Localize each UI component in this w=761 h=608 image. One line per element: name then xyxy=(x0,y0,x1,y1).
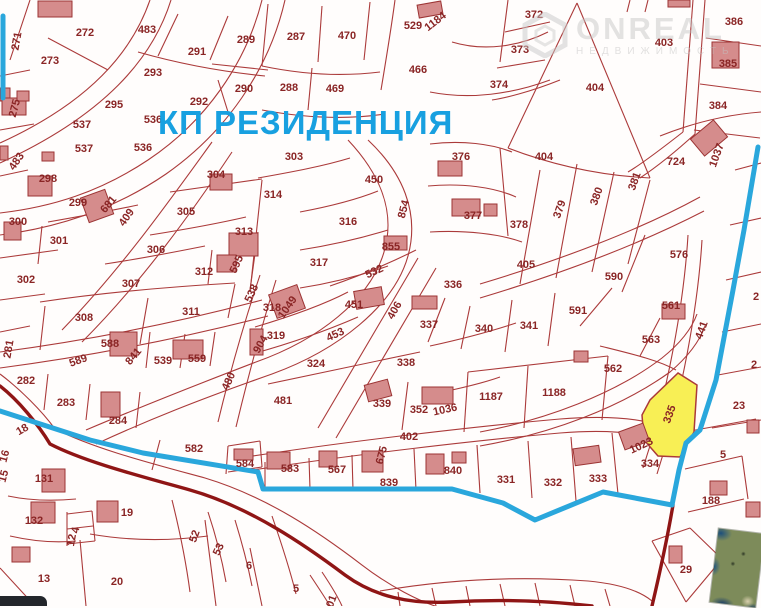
plot-label-338: 338 xyxy=(397,357,415,369)
plot-label-469: 469 xyxy=(326,83,344,95)
plot-label-5: 5 xyxy=(720,449,726,461)
parcel-boundary xyxy=(628,180,650,264)
plot-label-481: 481 xyxy=(274,395,292,407)
plot-label-450: 450 xyxy=(365,174,383,186)
parcel-boundary xyxy=(226,446,228,474)
plot-label-20: 20 xyxy=(111,576,123,588)
main-road-line xyxy=(0,386,592,606)
plot-label-855: 855 xyxy=(382,241,400,253)
plot-label-840: 840 xyxy=(444,465,462,477)
parcel-boundary xyxy=(548,293,555,346)
plot-label-332: 332 xyxy=(544,477,562,489)
parcel-boundary xyxy=(364,2,370,60)
parcel-boundary xyxy=(452,32,548,47)
plot-label-15: 15 xyxy=(0,469,11,484)
plot-label-314: 314 xyxy=(264,189,283,201)
plot-label-29: 29 xyxy=(680,564,692,576)
plot-label-5: 5 xyxy=(293,583,299,595)
plot-label-339: 339 xyxy=(373,398,391,410)
plot-label-304: 304 xyxy=(207,169,226,181)
building xyxy=(746,502,760,517)
building xyxy=(0,146,8,160)
plot-label-291: 291 xyxy=(188,46,206,58)
parcel-boundary xyxy=(742,456,748,499)
building xyxy=(438,161,462,176)
plot-label-16: 16 xyxy=(0,449,12,464)
parcel-boundary xyxy=(136,392,140,428)
building xyxy=(573,445,601,465)
plot-label-404: 404 xyxy=(535,151,554,163)
parcel-boundary xyxy=(150,217,246,235)
parcel-boundary xyxy=(253,417,668,456)
plot-label-576: 576 xyxy=(670,249,688,261)
plot-label-295: 295 xyxy=(105,99,123,111)
plot-label-537: 537 xyxy=(73,119,91,131)
parcel-boundary xyxy=(44,374,48,410)
parcel-boundary xyxy=(508,3,577,148)
plot-label-52: 52 xyxy=(187,529,202,545)
plot-label-386: 386 xyxy=(725,16,743,28)
plot-label-451: 451 xyxy=(345,299,363,311)
plot-label-584: 584 xyxy=(236,458,255,470)
plot-label-308: 308 xyxy=(75,312,93,324)
plot-label-409: 409 xyxy=(117,207,137,229)
plot-label-287: 287 xyxy=(287,31,305,43)
plot-label-352: 352 xyxy=(410,404,428,416)
plot-label-582: 582 xyxy=(185,443,203,455)
parcel-boundary xyxy=(158,14,178,56)
plot-label-483: 483 xyxy=(138,24,156,36)
plot-label-01: 01 xyxy=(324,594,339,606)
plot-label-290: 290 xyxy=(235,83,253,95)
plot-label-380: 380 xyxy=(588,186,606,207)
parcel-boundary xyxy=(452,377,500,390)
plot-label-536: 536 xyxy=(134,142,152,154)
parcel-boundary xyxy=(309,458,310,489)
plot-label-303: 303 xyxy=(285,151,303,163)
parcel-boundary xyxy=(500,0,508,62)
plot-label-404: 404 xyxy=(586,82,605,94)
plot-label-453: 453 xyxy=(325,326,347,345)
plot-label-724: 724 xyxy=(667,156,686,168)
plot-label-273: 273 xyxy=(41,55,59,67)
plot-label-376: 376 xyxy=(452,151,470,163)
building xyxy=(710,481,727,495)
building xyxy=(668,0,690,7)
parcel-boundary xyxy=(352,455,353,490)
plot-label-590: 590 xyxy=(605,271,623,283)
parcel-boundary xyxy=(228,284,235,318)
plot-label-381: 381 xyxy=(626,171,644,192)
building xyxy=(12,547,30,562)
parcel-boundary xyxy=(40,306,45,350)
parcel-boundary xyxy=(380,579,652,601)
building xyxy=(669,546,682,563)
plot-label-385: 385 xyxy=(719,58,737,70)
parcel-boundary xyxy=(80,540,86,606)
plot-label-288: 288 xyxy=(280,82,298,94)
plot-label-132: 132 xyxy=(25,515,43,527)
plot-label-306: 306 xyxy=(147,244,165,256)
plot-label-188: 188 xyxy=(702,495,720,507)
plot-label-2: 2 xyxy=(753,291,759,303)
building xyxy=(101,392,120,417)
parcel-boundary xyxy=(505,22,550,32)
plot-label-1187: 1187 xyxy=(479,391,503,403)
plot-label-311: 311 xyxy=(182,306,200,318)
parcel-boundary xyxy=(428,185,516,197)
map-title: КП РЕЗИДЕНЦИЯ xyxy=(158,104,498,142)
parcel-boundary xyxy=(228,441,260,446)
plot-label-282: 282 xyxy=(17,375,35,387)
plot-label-377: 377 xyxy=(464,210,482,222)
plot-label-562: 562 xyxy=(604,363,622,375)
plot-label-307: 307 xyxy=(122,278,140,290)
plot-label-340: 340 xyxy=(475,323,493,335)
plot-label-13: 13 xyxy=(38,573,50,585)
plot-label-675: 675 xyxy=(374,445,390,466)
parcel-boundary xyxy=(210,332,215,366)
plot-label-336: 336 xyxy=(444,279,462,291)
building xyxy=(42,152,54,161)
plot-label-317: 317 xyxy=(310,257,328,269)
parcel-boundary xyxy=(500,584,505,606)
bottom-left-ui-fragment xyxy=(0,596,47,606)
plot-label-372: 372 xyxy=(525,9,543,21)
parcel-boundary xyxy=(726,272,761,280)
plot-label-470: 470 xyxy=(338,30,356,42)
plot-label-313: 313 xyxy=(235,226,253,238)
plot-label-341: 341 xyxy=(520,320,538,332)
plot-label-583: 583 xyxy=(281,463,299,475)
plot-label-272: 272 xyxy=(76,27,94,39)
plot-label-374: 374 xyxy=(490,79,509,91)
plot-label-384: 384 xyxy=(709,100,728,112)
parcel-boundary xyxy=(695,0,705,134)
parcel-boundary xyxy=(700,84,761,92)
building xyxy=(574,351,588,362)
plot-label-301: 301 xyxy=(50,235,68,247)
parcel-boundary xyxy=(556,164,577,278)
parcel-boundary xyxy=(466,586,470,606)
plot-label-378: 378 xyxy=(510,219,528,231)
parcel-boundary xyxy=(258,158,350,178)
plot-label-271: 271 xyxy=(9,31,24,51)
building xyxy=(422,387,453,404)
parcel-boundary xyxy=(430,323,516,346)
plot-label-563: 563 xyxy=(642,334,660,346)
plot-label-302: 302 xyxy=(17,274,35,286)
plot-label-334: 334 xyxy=(641,458,660,470)
plot-label-324: 324 xyxy=(307,358,326,370)
parcel-boundary xyxy=(477,445,480,493)
plot-label-298: 298 xyxy=(39,173,57,185)
plot-label-591: 591 xyxy=(569,305,587,317)
building xyxy=(452,452,466,463)
plot-label-589: 589 xyxy=(68,352,89,370)
plot-label-466: 466 xyxy=(409,64,427,76)
parcel-boundary xyxy=(497,60,545,68)
plot-label-283: 283 xyxy=(57,397,75,409)
plot-label-53: 53 xyxy=(211,541,227,557)
parcel-boundary xyxy=(260,441,262,467)
plot-label-567: 567 xyxy=(328,464,346,476)
parcel-boundary xyxy=(300,191,378,212)
satellite-layer-thumbnail[interactable] xyxy=(710,528,761,607)
parcel-boundary xyxy=(0,250,58,258)
plot-label-529: 529 xyxy=(404,20,422,32)
plot-label-6: 6 xyxy=(246,560,252,572)
plot-label-131: 131 xyxy=(35,473,53,485)
parcel-boundary xyxy=(480,197,700,284)
parcel-boundary xyxy=(250,548,262,606)
parcel-boundary xyxy=(381,0,395,90)
parcel-boundary xyxy=(318,6,322,62)
parcel-boundary xyxy=(86,384,90,420)
parcel-boundary xyxy=(402,382,408,430)
building xyxy=(412,296,437,309)
building xyxy=(484,204,497,216)
plot-label-403: 403 xyxy=(655,37,673,49)
plot-label-537: 537 xyxy=(75,143,93,155)
building xyxy=(426,454,444,474)
parcel-boundary xyxy=(652,528,690,541)
parcel-boundary xyxy=(8,496,76,500)
plot-label-18: 18 xyxy=(14,422,31,439)
plot-label-281: 281 xyxy=(1,339,16,359)
plot-label-379: 379 xyxy=(551,199,569,220)
parcel-boundary xyxy=(685,456,742,469)
parcel-boundary xyxy=(0,294,45,300)
cadastral-map-layer[interactable]: 2712722734832912892932902922752955375365… xyxy=(0,0,761,606)
plot-label-4: 4 xyxy=(70,525,83,534)
plot-label-337: 337 xyxy=(420,319,438,331)
parcel-boundary xyxy=(210,16,228,60)
building xyxy=(17,91,29,101)
parcel-boundary xyxy=(627,0,630,12)
parcel-boundary xyxy=(0,326,30,332)
plot-label-441: 441 xyxy=(693,320,711,341)
parcel-boundary xyxy=(146,332,150,368)
plot-label-483: 483 xyxy=(7,151,27,173)
plot-label-1188: 1188 xyxy=(542,387,566,399)
plot-label-293: 293 xyxy=(144,67,162,79)
parcel-boundary xyxy=(612,433,618,494)
parcel-boundary xyxy=(464,372,468,432)
plot-label-331: 331 xyxy=(497,474,515,486)
plot-label-561: 561 xyxy=(662,300,680,312)
parcel-boundary xyxy=(67,511,92,514)
plot-label-300: 300 xyxy=(9,216,27,228)
parcel-boundary xyxy=(528,441,532,498)
parcel-boundary xyxy=(262,66,380,74)
parcel-boundary xyxy=(605,589,610,606)
parcel-boundary xyxy=(461,306,470,349)
plot-label-12: 12 xyxy=(65,533,79,547)
parcel-boundary xyxy=(508,148,650,178)
parcel-boundary xyxy=(300,230,388,250)
plot-label-559: 559 xyxy=(188,353,206,365)
plot-label-588: 588 xyxy=(101,338,119,350)
plot-label-402: 402 xyxy=(400,431,418,443)
plot-label-284: 284 xyxy=(109,415,128,427)
plot-label-23: 23 xyxy=(733,400,745,412)
parcel-boundary xyxy=(683,0,693,132)
parcel-boundary xyxy=(571,437,576,501)
parcel-boundary xyxy=(62,142,212,330)
parcel-boundary xyxy=(414,449,416,490)
plot-label-539: 539 xyxy=(154,355,172,367)
parcel-boundary xyxy=(172,500,190,592)
plot-label-480: 480 xyxy=(220,371,239,393)
plot-label-305: 305 xyxy=(177,206,195,218)
building xyxy=(38,1,72,17)
plot-label-854: 854 xyxy=(396,198,413,220)
plot-label-299: 299 xyxy=(69,197,87,209)
plot-label-373: 373 xyxy=(511,44,529,56)
parcel-boundary xyxy=(524,366,528,428)
parcel-boundary xyxy=(140,298,148,344)
plot-label-405: 405 xyxy=(517,259,535,271)
plot-label-312: 312 xyxy=(195,266,213,278)
plot-label-289: 289 xyxy=(237,34,255,46)
parcel-boundary xyxy=(212,64,268,70)
plot-label-333: 333 xyxy=(589,473,607,485)
plot-label-406: 406 xyxy=(385,300,405,322)
plot-label-2: 2 xyxy=(751,359,757,371)
plot-label-316: 316 xyxy=(339,216,357,228)
parcel-boundary xyxy=(645,0,648,12)
parcel-boundary xyxy=(38,226,42,264)
parcel-boundary xyxy=(318,258,418,428)
building xyxy=(747,420,759,433)
plot-label-839: 839 xyxy=(380,477,398,489)
building xyxy=(97,501,118,522)
parcel-boundary xyxy=(235,520,252,586)
plot-label-19: 19 xyxy=(121,507,133,519)
map-canvas[interactable]: 2712722734832912892932902922752955375365… xyxy=(0,0,761,606)
